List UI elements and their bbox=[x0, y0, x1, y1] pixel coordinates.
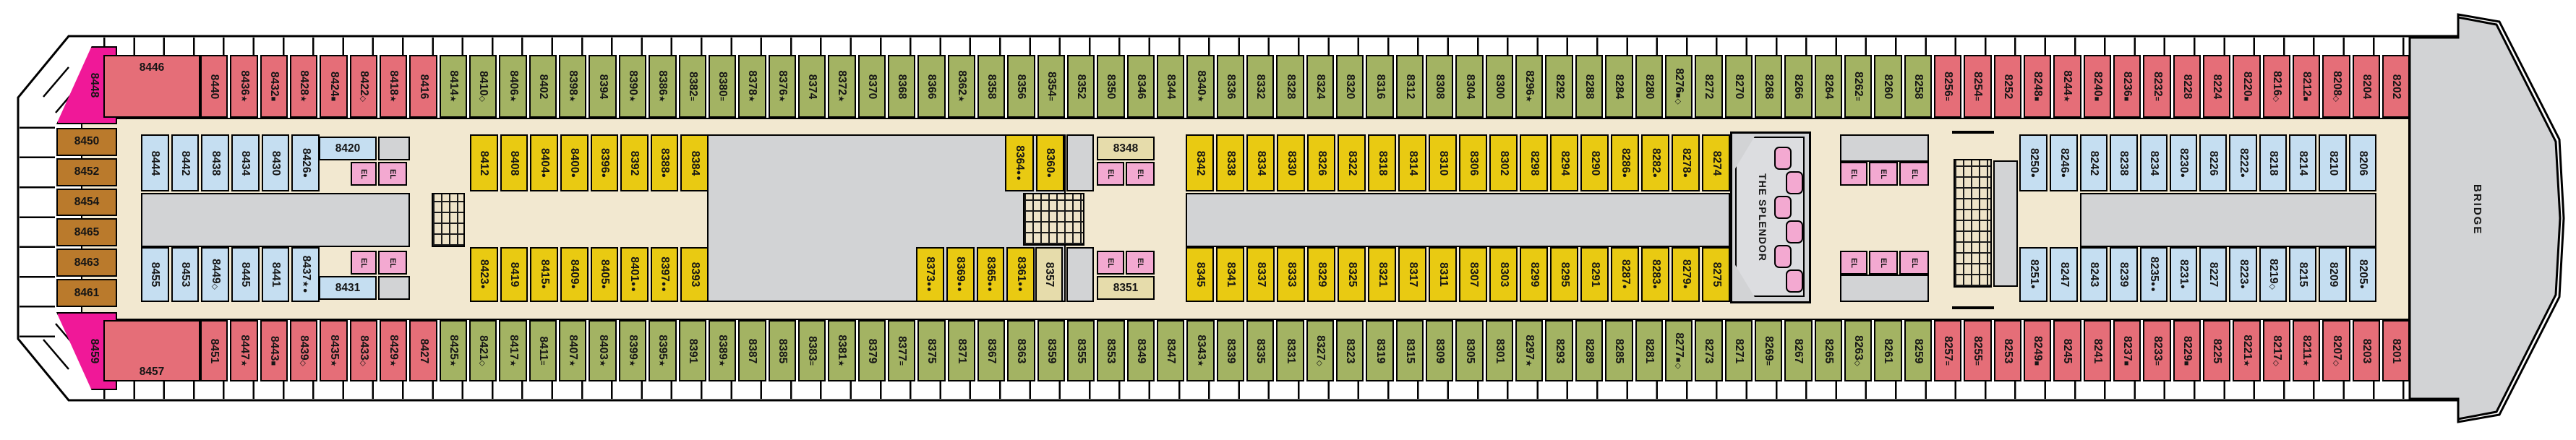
cabin-8298[interactable]: 8298 bbox=[1520, 134, 1548, 191]
cabin-8412[interactable]: 8412 bbox=[470, 134, 498, 191]
interior-cabin-run: 824382398235●●8231●82278223●8219◇8215820… bbox=[2080, 247, 2376, 302]
cabin-8359[interactable]: 8359 bbox=[1037, 320, 1065, 381]
cabin-8306[interactable]: 8306 bbox=[1459, 134, 1487, 191]
cabin-number: 8446 bbox=[140, 61, 164, 74]
cabin-8325[interactable]: 8325 bbox=[1338, 247, 1366, 302]
cabin-8319[interactable]: 8319 bbox=[1366, 320, 1393, 381]
cabin-8236[interactable]: 8236■ bbox=[2113, 55, 2141, 118]
cabin-8332[interactable]: 8332 bbox=[1246, 55, 1274, 118]
cabin-8398[interactable]: 8398★ bbox=[559, 55, 586, 118]
cabin-8207[interactable]: 8207◇ bbox=[2322, 320, 2350, 381]
cabin-8286[interactable]: 8286● bbox=[1611, 134, 1639, 191]
cabin-8324[interactable]: 8324 bbox=[1306, 55, 1334, 118]
cabin-8307[interactable]: 8307 bbox=[1459, 247, 1487, 302]
cabin-number: 8330 bbox=[1285, 150, 1298, 175]
cabin-8234[interactable]: 8234 bbox=[2140, 134, 2168, 191]
cabin-8239[interactable]: 8239 bbox=[2110, 247, 2137, 302]
cabin-feature-symbol: ●● bbox=[2149, 282, 2157, 293]
cabin-8407[interactable]: 8407★ bbox=[559, 320, 586, 381]
cabin-8406[interactable]: 8406★ bbox=[499, 55, 526, 118]
cabin-8320[interactable]: 8320 bbox=[1336, 55, 1364, 118]
cabin-8416[interactable]: 8416 bbox=[409, 55, 437, 118]
cabin-8214[interactable]: 8214 bbox=[2289, 134, 2316, 191]
cabin-8220[interactable]: 8220■ bbox=[2233, 55, 2260, 118]
cabin-8205[interactable]: 8205● bbox=[2349, 247, 2376, 302]
cabin-8326[interactable]: 8326 bbox=[1307, 134, 1335, 191]
cabin-8230[interactable]: 8230● bbox=[2170, 134, 2197, 191]
cabin-number: 8461 bbox=[74, 287, 99, 300]
cabin-8454[interactable]: 8454 bbox=[56, 189, 117, 217]
cabin-8409[interactable]: 8409● bbox=[560, 247, 589, 302]
cabin-8304[interactable]: 8304 bbox=[1455, 55, 1483, 118]
cabin-8347[interactable]: 8347 bbox=[1157, 320, 1184, 381]
cabin-number: 8321 bbox=[1376, 262, 1389, 287]
cabin-8461[interactable]: 8461 bbox=[56, 279, 117, 307]
cabin-number: 8223● bbox=[2237, 259, 2250, 290]
cabin-8290[interactable]: 8290 bbox=[1580, 134, 1609, 191]
cabin-8327[interactable]: 8327◇ bbox=[1306, 320, 1334, 381]
cabin-8278[interactable]: 8278● bbox=[1672, 134, 1700, 191]
cabin-8420[interactable]: 8420 bbox=[319, 137, 377, 160]
cabin-8264[interactable]: 8264 bbox=[1815, 55, 1842, 118]
cabin-8452[interactable]: 8452 bbox=[56, 158, 117, 186]
cabin-8321[interactable]: 8321 bbox=[1368, 247, 1396, 302]
cabin-8447[interactable]: 8447★ bbox=[230, 320, 257, 381]
cabin-8418[interactable]: 8418★ bbox=[380, 55, 407, 118]
cabin-8342[interactable]: 8342 bbox=[1186, 134, 1214, 191]
cabin-8341[interactable]: 8341 bbox=[1216, 247, 1244, 302]
cabin-8260[interactable]: 8260 bbox=[1874, 55, 1901, 118]
cabin-8377[interactable]: 8377= bbox=[888, 320, 915, 381]
cabin-8333[interactable]: 8333 bbox=[1277, 247, 1305, 302]
cabin-number: 8299 bbox=[1528, 262, 1541, 287]
cabin-8226[interactable]: 8226 bbox=[2199, 134, 2227, 191]
cabin-8380[interactable]: 8380= bbox=[709, 55, 736, 118]
cabin-8373[interactable]: 8373●● bbox=[916, 247, 944, 302]
cabin-8219[interactable]: 8219◇ bbox=[2259, 247, 2287, 302]
cabin-number: 8231● bbox=[2177, 259, 2190, 290]
cabin-8415[interactable]: 8415● bbox=[530, 247, 558, 302]
cabin-8228[interactable]: 8228 bbox=[2173, 55, 2201, 118]
cabin-8368[interactable]: 8368 bbox=[888, 55, 915, 118]
cabin-number: 8422◇ bbox=[357, 71, 370, 103]
cabin-8384[interactable]: 8384 bbox=[680, 134, 709, 191]
cabin-8453[interactable]: 8453 bbox=[171, 247, 200, 302]
cabin-8284[interactable]: 8284 bbox=[1605, 55, 1633, 118]
cabin-8431[interactable]: 8431 bbox=[319, 276, 377, 300]
cabin-number: 8369●● bbox=[954, 256, 967, 293]
cabin-8257[interactable]: 8257= bbox=[1934, 320, 1961, 381]
cabin-8221[interactable]: 8221★ bbox=[2233, 320, 2260, 381]
cabin-8404[interactable]: 8404● bbox=[530, 134, 558, 191]
cabin-8271[interactable]: 8271 bbox=[1725, 320, 1753, 381]
cabin-8443[interactable]: 8443■ bbox=[260, 320, 288, 381]
cabin-8391[interactable]: 8391 bbox=[679, 320, 706, 381]
cabin-8210[interactable]: 8210 bbox=[2319, 134, 2346, 191]
cabin-8402[interactable]: 8402 bbox=[529, 55, 557, 118]
cabin-8224[interactable]: 8224 bbox=[2203, 55, 2230, 118]
cabin-8225[interactable]: 8225 bbox=[2203, 320, 2230, 381]
cabin-8303[interactable]: 8303 bbox=[1489, 247, 1518, 302]
cabin-8426[interactable]: 8426● bbox=[291, 134, 320, 191]
cabin-8328[interactable]: 8328 bbox=[1276, 55, 1304, 118]
cabin-8233[interactable]: 8233= bbox=[2143, 320, 2170, 381]
cabin-8276[interactable]: 8276■◇ bbox=[1665, 55, 1693, 118]
cabin-number: 8357 bbox=[1043, 262, 1056, 287]
cabin-8389[interactable]: 8389★ bbox=[709, 320, 736, 381]
cabin-number: 8279● bbox=[1679, 259, 1693, 290]
cabin-8299[interactable]: 8299 bbox=[1520, 247, 1548, 302]
cabin-8251[interactable]: 8251● bbox=[2019, 247, 2047, 302]
cabin-8288[interactable]: 8288 bbox=[1575, 55, 1603, 118]
cabin-8323[interactable]: 8323 bbox=[1336, 320, 1364, 381]
cabin-8316[interactable]: 8316 bbox=[1366, 55, 1393, 118]
cabin-8378[interactable]: 8378★ bbox=[738, 55, 766, 118]
cabin-8388[interactable]: 8388● bbox=[651, 134, 679, 191]
cabin-8427[interactable]: 8427 bbox=[409, 320, 437, 381]
cabin-8357[interactable]: 8357 bbox=[1035, 247, 1063, 302]
cabin-8349[interactable]: 8349 bbox=[1127, 320, 1155, 381]
cabin-8263[interactable]: 8263◇ bbox=[1844, 320, 1872, 381]
cabin-8315[interactable]: 8315 bbox=[1396, 320, 1424, 381]
cabin-8203[interactable]: 8203 bbox=[2353, 320, 2380, 381]
cabin-8212[interactable]: 8212■ bbox=[2293, 55, 2320, 118]
cabin-8242[interactable]: 8242 bbox=[2080, 134, 2108, 191]
cabin-8322[interactable]: 8322 bbox=[1338, 134, 1366, 191]
cabin-8437[interactable]: 8437★● bbox=[291, 247, 320, 302]
cabin-8422[interactable]: 8422◇ bbox=[350, 55, 377, 118]
cabin-8269[interactable]: 8269= bbox=[1755, 320, 1782, 381]
cabin-8331[interactable]: 8331 bbox=[1276, 320, 1304, 381]
cabin-feature-symbol: ● bbox=[2029, 173, 2037, 178]
cabin-8215[interactable]: 8215 bbox=[2289, 247, 2316, 302]
cabin-8463[interactable]: 8463 bbox=[56, 249, 117, 277]
cabin-number: 8358 bbox=[985, 74, 998, 98]
cabin-8314[interactable]: 8314 bbox=[1398, 134, 1426, 191]
cabin-8403[interactable]: 8403★ bbox=[589, 320, 616, 381]
cabin-8285[interactable]: 8285 bbox=[1605, 320, 1633, 381]
cabin-number: 8240■ bbox=[2091, 71, 2104, 101]
cabin-8337[interactable]: 8337 bbox=[1246, 247, 1275, 302]
cabin-8361[interactable]: 8361●● bbox=[1006, 247, 1035, 302]
cabin-8439[interactable]: 8439◇ bbox=[290, 320, 317, 381]
cabin-8305[interactable]: 8305 bbox=[1455, 320, 1483, 381]
suite-the-splendor[interactable]: THE SPLENDOR bbox=[1730, 131, 1811, 303]
cabin-8272[interactable]: 8272 bbox=[1695, 55, 1722, 118]
cabin-8289[interactable]: 8289 bbox=[1575, 320, 1603, 381]
cabin-8209[interactable]: 8209 bbox=[2319, 247, 2346, 302]
cabin-8245[interactable]: 8245 bbox=[2053, 320, 2081, 381]
cabin-8449[interactable]: 8449◇ bbox=[201, 247, 229, 302]
cabin-8254[interactable]: 8254= bbox=[1964, 55, 1991, 118]
cabin-8410[interactable]: 8410◇ bbox=[469, 55, 497, 118]
cabin-8381[interactable]: 8381★ bbox=[828, 320, 855, 381]
cabin-8400[interactable]: 8400● bbox=[560, 134, 589, 191]
cabin-8283[interactable]: 8283● bbox=[1641, 247, 1669, 302]
cabin-8255[interactable]: 8255= bbox=[1964, 320, 1991, 381]
cabin-8372[interactable]: 8372★ bbox=[828, 55, 855, 118]
cabin-8423[interactable]: 8423● bbox=[470, 247, 498, 302]
cabin-8273[interactable]: 8273 bbox=[1695, 320, 1722, 381]
cabin-feature-symbol: ● bbox=[2358, 284, 2366, 290]
cabin-8265[interactable]: 8265 bbox=[1815, 320, 1842, 381]
interior-cabin-run: 8364●●8360● bbox=[1005, 134, 1064, 191]
cabin-8340[interactable]: 8340★ bbox=[1186, 55, 1214, 118]
cabin-8371[interactable]: 8371 bbox=[948, 320, 975, 381]
cabin-8395[interactable]: 8395★ bbox=[649, 320, 676, 381]
cabin-8277[interactable]: 8277■◇ bbox=[1665, 320, 1693, 381]
cabin-8258[interactable]: 8258 bbox=[1904, 55, 1932, 118]
cabin-8217[interactable]: 8217◇ bbox=[2263, 320, 2290, 381]
cabin-8366[interactable]: 8366 bbox=[917, 55, 945, 118]
cabin-8383[interactable]: 8383= bbox=[798, 320, 826, 381]
cabin-8358[interactable]: 8358 bbox=[977, 55, 1005, 118]
cabin-8211[interactable]: 8211★ bbox=[2293, 320, 2320, 381]
cabin-8376[interactable]: 8376★ bbox=[769, 55, 796, 118]
cabin-8405[interactable]: 8405● bbox=[591, 247, 619, 302]
cabin-8270[interactable]: 8270 bbox=[1725, 55, 1753, 118]
cabin-8291[interactable]: 8291 bbox=[1580, 247, 1609, 302]
cabin-8253[interactable]: 8253 bbox=[1994, 320, 2021, 381]
cabin-8241[interactable]: 8241 bbox=[2084, 320, 2111, 381]
cabin-8338[interactable]: 8338 bbox=[1216, 134, 1244, 191]
cabin-8281[interactable]: 8281 bbox=[1635, 320, 1663, 381]
cabin-8425[interactable]: 8425★ bbox=[440, 320, 467, 381]
cabin-8252[interactable]: 8252 bbox=[1994, 55, 2021, 118]
cabin-8216[interactable]: 8216◇ bbox=[2263, 55, 2290, 118]
cabin-8394[interactable]: 8394 bbox=[589, 55, 616, 118]
cabin-8419[interactable]: 8419 bbox=[500, 247, 529, 302]
cabin-8417[interactable]: 8417★ bbox=[499, 320, 526, 381]
cabin-8300[interactable]: 8300 bbox=[1486, 55, 1513, 118]
cabin-8256[interactable]: 8256= bbox=[1934, 55, 1961, 118]
cabin-number: 8454 bbox=[74, 196, 99, 209]
cabin-8309[interactable]: 8309 bbox=[1426, 320, 1453, 381]
cabin-8310[interactable]: 8310 bbox=[1429, 134, 1457, 191]
cabin-8292[interactable]: 8292 bbox=[1545, 55, 1572, 118]
public-area bbox=[1840, 275, 1929, 302]
cabin-8436[interactable]: 8436★ bbox=[230, 55, 257, 118]
cabin-feature-symbol: ● bbox=[569, 284, 578, 290]
cabin-8446[interactable]: 8446 bbox=[103, 55, 200, 118]
elevator: EL bbox=[351, 162, 377, 186]
cabin-feature-symbol: ●● bbox=[1014, 170, 1023, 181]
cabin-8364[interactable]: 8364●● bbox=[1005, 134, 1034, 191]
cabin-8295[interactable]: 8295 bbox=[1550, 247, 1578, 302]
cabin-8287[interactable]: 8287● bbox=[1611, 247, 1639, 302]
cabin-8238[interactable]: 8238 bbox=[2110, 134, 2137, 191]
cabin-8365[interactable]: 8365●● bbox=[977, 247, 1005, 302]
cabin-8229[interactable]: 8229■ bbox=[2173, 320, 2201, 381]
cabin-number: 8421◇ bbox=[476, 335, 489, 367]
cabin-8434[interactable]: 8434 bbox=[231, 134, 260, 191]
cabin-8231[interactable]: 8231● bbox=[2170, 247, 2197, 302]
cabin-number: 8248■ bbox=[2031, 71, 2044, 101]
cabin-8465[interactable]: 8465 bbox=[56, 218, 117, 246]
cabin-8202[interactable]: 8202 bbox=[2382, 55, 2410, 118]
cabin-8343[interactable]: 8343★ bbox=[1186, 320, 1214, 381]
cabin-8297[interactable]: 8297★ bbox=[1515, 320, 1543, 381]
cabin-8261[interactable]: 8261 bbox=[1874, 320, 1901, 381]
cabin-number: 8268 bbox=[1762, 74, 1775, 98]
cabin-8393[interactable]: 8393 bbox=[680, 247, 709, 302]
cabin-8293[interactable]: 8293 bbox=[1545, 320, 1572, 381]
cabin-8262[interactable]: 8262= bbox=[1844, 55, 1872, 118]
cabin-number: 8285 bbox=[1612, 338, 1625, 363]
cabin-8414[interactable]: 8414★ bbox=[440, 55, 467, 118]
cabin-8294[interactable]: 8294 bbox=[1550, 134, 1578, 191]
cabin-feature-symbol: ■ bbox=[2122, 96, 2131, 102]
cabin-8450[interactable]: 8450 bbox=[56, 128, 117, 156]
cabin-8438[interactable]: 8438 bbox=[201, 134, 229, 191]
cabin-8250[interactable]: 8250● bbox=[2019, 134, 2047, 191]
cabin-8429[interactable]: 8429★ bbox=[380, 320, 407, 381]
cabin-8208[interactable]: 8208◇ bbox=[2322, 55, 2350, 118]
cabin-8248[interactable]: 8248■ bbox=[2024, 55, 2051, 118]
cabin-8424[interactable]: 8424■ bbox=[320, 55, 347, 118]
cabin-8249[interactable]: 8249■ bbox=[2024, 320, 2051, 381]
cabin-8204[interactable]: 8204 bbox=[2353, 55, 2380, 118]
cabin-8237[interactable]: 8237■ bbox=[2113, 320, 2141, 381]
cabin-8222[interactable]: 8222● bbox=[2229, 134, 2256, 191]
cabin-8369[interactable]: 8369●● bbox=[946, 247, 975, 302]
cabin-8379[interactable]: 8379 bbox=[858, 320, 886, 381]
elevator: EL bbox=[1097, 251, 1124, 275]
cabin-8444[interactable]: 8444 bbox=[141, 134, 169, 191]
cabin-8267[interactable]: 8267 bbox=[1784, 320, 1812, 381]
cabin-8435[interactable]: 8435★ bbox=[320, 320, 347, 381]
cabin-8392[interactable]: 8392 bbox=[620, 134, 649, 191]
cabin-8386[interactable]: 8386★ bbox=[649, 55, 676, 118]
cabin-8334[interactable]: 8334 bbox=[1246, 134, 1275, 191]
cabin-8455[interactable]: 8455 bbox=[141, 247, 169, 302]
cabin-8375[interactable]: 8375 bbox=[917, 320, 945, 381]
cabin-8244[interactable]: 8244★ bbox=[2053, 55, 2081, 118]
cabin-8206[interactable]: 8206 bbox=[2349, 134, 2376, 191]
cabin-8308[interactable]: 8308 bbox=[1426, 55, 1453, 118]
cabin-8201[interactable]: 8201 bbox=[2382, 320, 2410, 381]
cabin-8408[interactable]: 8408 bbox=[500, 134, 529, 191]
balcony-band-top bbox=[103, 38, 2410, 55]
cabin-8259[interactable]: 8259 bbox=[1904, 320, 1932, 381]
cabin-8348[interactable]: 8348 bbox=[1097, 137, 1155, 160]
cabin-number: 8373●● bbox=[923, 256, 936, 293]
cabin-8382[interactable]: 8382= bbox=[679, 55, 706, 118]
cabin-8282[interactable]: 8282● bbox=[1641, 134, 1669, 191]
cabin-number: 8453 bbox=[179, 262, 192, 287]
cabin-8457[interactable]: 8457 bbox=[103, 320, 200, 381]
cabin-number: 8225 bbox=[2210, 338, 2223, 363]
cabin-8317[interactable]: 8317 bbox=[1398, 247, 1426, 302]
cabin-8401[interactable]: 8401●● bbox=[620, 247, 649, 302]
cabin-8346[interactable]: 8346 bbox=[1127, 55, 1155, 118]
cabin-8330[interactable]: 8330 bbox=[1277, 134, 1305, 191]
cabin-feature-symbol: = bbox=[2152, 361, 2161, 366]
cabin-8280[interactable]: 8280 bbox=[1635, 55, 1663, 118]
cabin-8432[interactable]: 8432■ bbox=[260, 55, 288, 118]
cabin-8266[interactable]: 8266 bbox=[1784, 55, 1812, 118]
cabin-8336[interactable]: 8336 bbox=[1217, 55, 1244, 118]
cabin-number: 8431 bbox=[335, 282, 360, 295]
cabin-8339[interactable]: 8339 bbox=[1217, 320, 1244, 381]
cabin-8390[interactable]: 8390★ bbox=[619, 55, 646, 118]
cabin-8223[interactable]: 8223● bbox=[2229, 247, 2256, 302]
cabin-8421[interactable]: 8421◇ bbox=[469, 320, 497, 381]
cabin-8399[interactable]: 8399★ bbox=[619, 320, 646, 381]
cabin-8232[interactable]: 8232= bbox=[2143, 55, 2170, 118]
cabin-8442[interactable]: 8442 bbox=[171, 134, 200, 191]
cabin-8363[interactable]: 8363 bbox=[1007, 320, 1035, 381]
cabin-8235[interactable]: 8235●● bbox=[2140, 247, 2168, 302]
bridge-label: BRIDGE bbox=[2471, 184, 2483, 235]
cabin-8301[interactable]: 8301 bbox=[1486, 320, 1513, 381]
cabin-8360[interactable]: 8360● bbox=[1036, 134, 1065, 191]
cabin-8385[interactable]: 8385 bbox=[769, 320, 796, 381]
cabin-8318[interactable]: 8318 bbox=[1368, 134, 1396, 191]
cabin-8240[interactable]: 8240■ bbox=[2084, 55, 2111, 118]
cabin-8441[interactable]: 8441 bbox=[262, 247, 290, 302]
cabin-8451[interactable]: 8451 bbox=[200, 320, 228, 381]
cabin-8396[interactable]: 8396● bbox=[591, 134, 619, 191]
cabin-8353[interactable]: 8353 bbox=[1097, 320, 1124, 381]
cabin-8274[interactable]: 8274 bbox=[1702, 134, 1730, 191]
cabin-8345[interactable]: 8345 bbox=[1186, 247, 1214, 302]
cabin-8411[interactable]: 8411= bbox=[529, 320, 557, 381]
cabin-8374[interactable]: 8374 bbox=[798, 55, 826, 118]
cabin-8351[interactable]: 8351 bbox=[1097, 276, 1155, 300]
cabin-8335[interactable]: 8335 bbox=[1246, 320, 1274, 381]
cabin-8440[interactable]: 8440 bbox=[200, 55, 228, 118]
cabin-8246[interactable]: 8246● bbox=[2050, 134, 2078, 191]
cabin-8344[interactable]: 8344 bbox=[1157, 55, 1184, 118]
cabin-8243[interactable]: 8243 bbox=[2080, 247, 2108, 302]
cabin-8430[interactable]: 8430 bbox=[262, 134, 290, 191]
cabin-8355[interactable]: 8355 bbox=[1067, 320, 1095, 381]
cabin-8362[interactable]: 8362★ bbox=[948, 55, 975, 118]
cabin-feature-symbol: ◇ bbox=[2268, 284, 2277, 290]
cabin-number: 8391 bbox=[686, 338, 699, 363]
cabin-8296[interactable]: 8296★ bbox=[1515, 55, 1543, 118]
cabin-number: 8432■ bbox=[268, 71, 281, 101]
cabin-8350[interactable]: 8350 bbox=[1097, 55, 1124, 118]
aft-cabin-column: 845084528454846584638461 bbox=[56, 128, 117, 307]
cabin-8312[interactable]: 8312 bbox=[1396, 55, 1424, 118]
cabin-8356[interactable]: 8356 bbox=[1007, 55, 1035, 118]
cabin-feature-symbol: ■◇ bbox=[1674, 357, 1682, 369]
cabin-8352[interactable]: 8352 bbox=[1067, 55, 1095, 118]
cabin-8354[interactable]: 8354= bbox=[1037, 55, 1065, 118]
cabin-8370[interactable]: 8370 bbox=[858, 55, 886, 118]
cabin-8387[interactable]: 8387 bbox=[738, 320, 766, 381]
cabin-8397[interactable]: 8397●● bbox=[651, 247, 679, 302]
cabin-8428[interactable]: 8428★ bbox=[290, 55, 317, 118]
cabin-8268[interactable]: 8268 bbox=[1755, 55, 1782, 118]
cabin-8445[interactable]: 8445 bbox=[231, 247, 260, 302]
cabin-8218[interactable]: 8218 bbox=[2259, 134, 2287, 191]
interior-cabin-run: 8250●8246● bbox=[2019, 134, 2078, 191]
cabin-8367[interactable]: 8367 bbox=[977, 320, 1005, 381]
cabin-number: 8342 bbox=[1194, 150, 1207, 175]
cabin-8311[interactable]: 8311 bbox=[1429, 247, 1457, 302]
cabin-8433[interactable]: 8433◇ bbox=[350, 320, 377, 381]
cabin-8227[interactable]: 8227 bbox=[2199, 247, 2227, 302]
cabin-8279[interactable]: 8279● bbox=[1672, 247, 1700, 302]
cabin-8247[interactable]: 8247 bbox=[2050, 247, 2078, 302]
cabin-8302[interactable]: 8302 bbox=[1489, 134, 1518, 191]
cabin-8329[interactable]: 8329 bbox=[1307, 247, 1335, 302]
cabin-feature-symbol: ● bbox=[2178, 173, 2187, 178]
cabin-8275[interactable]: 8275 bbox=[1702, 247, 1730, 302]
